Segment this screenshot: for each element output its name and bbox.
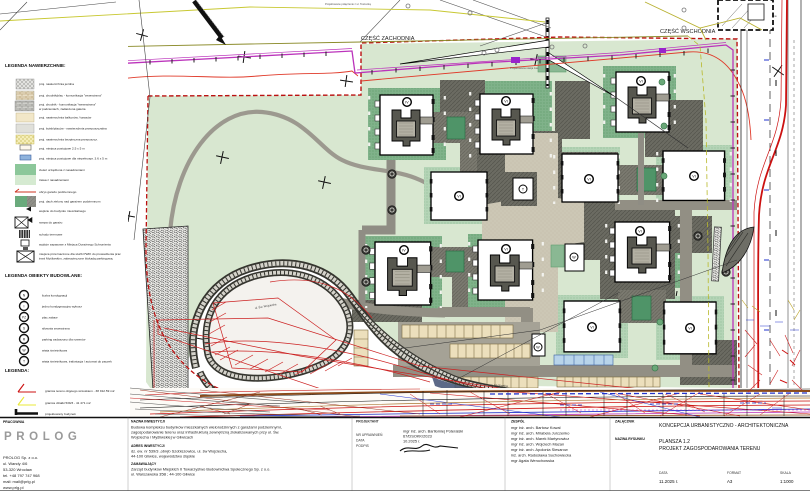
svg-text:KONCEPCJA URBANISTYCZNO - ARCH: KONCEPCJA URBANISTYCZNO - ARCHITEKTONICZ… <box>659 423 789 429</box>
svg-text:VI: VI <box>590 326 593 330</box>
svg-text:SKALA: SKALA <box>780 471 792 475</box>
svg-text:proj. chodnik/plac - komunikac: proj. chodnik/plac - komunikacja "zewnęt… <box>39 94 102 98</box>
svg-text:LEGENDA:: LEGENDA: <box>5 368 29 373</box>
svg-text:VI: VI <box>504 248 507 252</box>
svg-text:VI: VI <box>639 80 642 84</box>
svg-text:mgr inż. arch. Mirabela Jurcze: mgr inż. arch. Mirabela Jurczenko <box>511 431 569 436</box>
svg-text:proj. nawierzchnia balkonów /: proj. nawierzchnia balkonów / tarasów <box>39 116 92 120</box>
svg-text:VI: VI <box>688 327 691 331</box>
svg-text:ZESPÓŁ: ZESPÓŁ <box>511 419 525 424</box>
svg-text:proj. nawierzchnia jezdna: proj. nawierzchnia jezdna <box>39 82 74 86</box>
svg-text:ZAMAWIAJĄCY: ZAMAWIAJĄCY <box>131 462 157 466</box>
svg-text:VI: VI <box>638 230 641 234</box>
svg-text:ul. Wandy 4/6: ul. Wandy 4/6 <box>3 461 28 466</box>
svg-text:inż. arch. Radosława Suchowiec: inż. arch. Radosława Suchowiecka <box>511 453 572 458</box>
svg-text:granica terenu objętego wniosk: granica terenu objętego wnioskiem - 38 9… <box>45 389 115 393</box>
svg-text:www.prlg.pl: www.prlg.pl <box>3 485 24 490</box>
svg-text:1:1000: 1:1000 <box>780 479 794 484</box>
svg-text:PROLOG: PROLOG <box>4 431 81 443</box>
svg-text:proj. miejsca postojowe 2.5 x: proj. miejsca postojowe 2.5 x 5 m <box>39 147 85 151</box>
svg-text:CZĘŚĆ WSCHODNIA: CZĘŚĆ WSCHODNIA <box>660 27 716 35</box>
svg-text:mgr inż. arch. Marek Martynowi: mgr inż. arch. Marek Martynowicz <box>511 436 569 441</box>
svg-text:DATA: DATA <box>356 439 365 443</box>
svg-text:inwś Myśliwskim, zabezpieczone: inwś Myśliwskim, zabezpieczone blokadą p… <box>39 257 113 261</box>
svg-text:wiata śmietnikowa, trafostacja: wiata śmietnikowa, trafostacja / automat… <box>42 360 112 364</box>
svg-text:proj. boisk/placów - nawierzch: proj. boisk/placów - nawierzchnia przepu… <box>39 127 107 131</box>
svg-text:Projektowane połączenie z ul.: Projektowane połączenie z ul. Toszecką <box>325 2 371 6</box>
svg-text:mgr Agata Werochowska: mgr Agata Werochowska <box>511 458 555 463</box>
svg-text:liczba kondygnacji: liczba kondygnacji <box>42 294 67 298</box>
svg-text:IV: IV <box>402 249 406 253</box>
svg-text:w podcieniach, zadaszona galer: w podcieniach, zadaszona galeria <box>39 107 86 111</box>
svg-text:mgr inż. arch. Wojciech Mazan: mgr inż. arch. Wojciech Mazan <box>511 442 564 447</box>
svg-text:trawa z nasadzeniami: trawa z nasadzeniami <box>39 178 69 182</box>
svg-text:mail: mail@prlg.pl: mail: mail@prlg.pl <box>3 479 35 484</box>
svg-text:tel. +48 797 747 968: tel. +48 797 747 968 <box>3 473 40 478</box>
svg-text:I: I <box>24 305 25 309</box>
svg-text:W: W <box>536 346 540 350</box>
svg-text:obrys garażu podziemnego: obrys garażu podziemnego <box>39 190 77 194</box>
svg-text:zieleń urządzona z nasadzeniam: zieleń urządzona z nasadzeniami <box>39 168 85 172</box>
svg-text:IV: IV <box>405 101 409 105</box>
svg-text:VI: VI <box>457 195 460 199</box>
svg-text:53-320 Wrocław: 53-320 Wrocław <box>3 467 32 472</box>
svg-text:PODPIS: PODPIS <box>356 444 370 448</box>
svg-text:projektowany budynek: projektowany budynek <box>45 412 76 416</box>
svg-text:CZĘŚĆ ZACHODNIA: CZĘŚĆ ZACHODNIA <box>361 34 415 42</box>
svg-text:PRACOWNIA: PRACOWNIA <box>3 420 25 424</box>
svg-text:DATA: DATA <box>659 471 668 475</box>
svg-text:VI: VI <box>692 175 695 179</box>
svg-text:T: T <box>23 360 25 364</box>
svg-text:mgr inż. arch. Bartosz Kowal: mgr inż. arch. Bartosz Kowal <box>511 425 561 430</box>
svg-text:granica działki 539/3 - 41 471: granica działki 539/3 - 41 471 m2 <box>45 401 91 405</box>
svg-text:PROJEKT ZAGOSPODAROWANIA TEREN: PROJEKT ZAGOSPODAROWANIA TERENU <box>659 446 761 452</box>
svg-text:proj. chodnik - komunikacja "w: proj. chodnik - komunikacja "wewnętrzna" <box>39 103 96 107</box>
svg-text:ul. Warszawska 35B ; 44-100 Gl: ul. Warszawska 35B ; 44-100 Gliwice <box>131 472 195 477</box>
svg-text:schody terenowe: schody terenowe <box>39 233 63 237</box>
svg-text:LEGENDA OBIEKTY BUDOWLANE:: LEGENDA OBIEKTY BUDOWLANE: <box>5 273 83 278</box>
svg-text:wyjście zapasowe z Miejsca Dor: wyjście zapasowe z Miejsca Doraźnego Sch… <box>39 243 111 247</box>
svg-text:LEGENDA NAWIERZCHNIE:: LEGENDA NAWIERZCHNIE: <box>5 63 66 68</box>
svg-text:VI: VI <box>587 178 590 182</box>
svg-text:NR UPRAWNIEŃ: NR UPRAWNIEŃ <box>356 433 383 437</box>
svg-text:A3: A3 <box>727 479 733 484</box>
svg-text:rampa do garażu: rampa do garażu <box>39 221 63 225</box>
svg-text:parking zadaszony dla rowerów: parking zadaszony dla rowerów <box>42 338 86 342</box>
svg-text:siłownia zewnętrzna: siłownia zewnętrzna <box>42 327 70 331</box>
svg-text:PROLOG Sp. z o.o.: PROLOG Sp. z o.o. <box>3 455 38 460</box>
svg-text:PROJEKTANT: PROJEKTANT <box>356 420 380 424</box>
svg-text:wejście do budynku mieszkalneg: wejście do budynku mieszkalnego <box>39 209 86 213</box>
svg-text:wiata śmietnikowa: wiata śmietnikowa <box>42 349 67 353</box>
svg-text:miejsca przeznaczone dla służb: miejsca przeznaczone dla służb PWiK do p… <box>39 252 121 256</box>
svg-text:NAZWA RYSUNKU: NAZWA RYSUNKU <box>615 437 645 441</box>
svg-text:proj. dach zielony nad garażem: proj. dach zielony nad garażem podziemny… <box>39 200 101 204</box>
svg-text:ADRES INWESTYCJI: ADRES INWESTYCJI <box>131 444 165 448</box>
svg-text:PLANSZA 1.2: PLANSZA 1.2 <box>659 439 690 445</box>
svg-text:10.2025 r.: 10.2025 r. <box>403 439 420 444</box>
svg-text:W: W <box>572 256 576 260</box>
svg-text:VI: VI <box>504 100 507 104</box>
svg-text:plac zabaw: plac zabaw <box>42 316 58 320</box>
svg-text:jedno kondygnacyjny wykusz: jedno kondygnacyjny wykusz <box>41 305 82 309</box>
svg-text:mgr inż. arch. Apolonia Siesar: mgr inż. arch. Apolonia Siesarow <box>511 447 568 452</box>
svg-text:ZAŁĄCZNIK: ZAŁĄCZNIK <box>615 420 635 424</box>
svg-text:Projektowana stacja zas.: Projektowana stacja zas. <box>510 66 539 70</box>
svg-text:PZ: PZ <box>22 316 26 320</box>
svg-text:44-100 Gliwice, województwo śl: 44-100 Gliwice, województwo śląskie <box>131 454 195 459</box>
svg-text:Wojciecha / Myśliwskiej w Gliw: Wojciecha / Myśliwskiej w Gliwicach <box>131 435 193 440</box>
svg-text:11.2025 r.: 11.2025 r. <box>659 479 678 484</box>
svg-text:proj. miejsca postojowe dla ni: proj. miejsca postojowe dla niepełnospr.… <box>39 157 108 161</box>
svg-text:FORMAT: FORMAT <box>727 471 741 475</box>
svg-text:proj. nawierzchnia bezpieczna: proj. nawierzchnia bezpieczna przepuszcz… <box>39 138 98 142</box>
svg-text:NAZWA INWESTYCJI: NAZWA INWESTYCJI <box>131 420 165 424</box>
